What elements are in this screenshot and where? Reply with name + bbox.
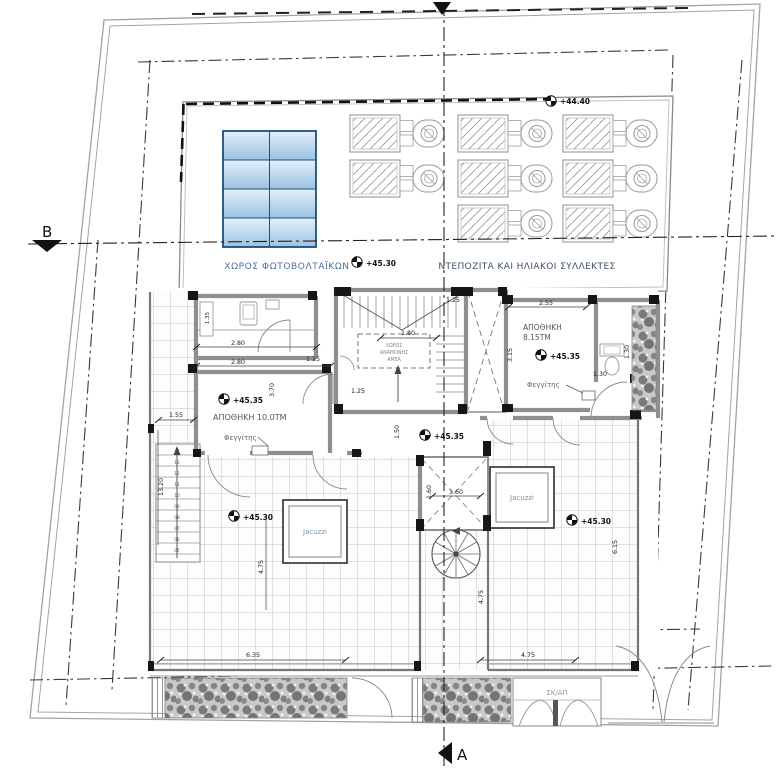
dim: 3.15 [507, 348, 514, 362]
elevation-terrace-left: +45.30 [243, 513, 273, 522]
section-letter-a: A [457, 746, 468, 764]
stair-store-room [513, 678, 601, 726]
step-number: 05 [174, 548, 180, 553]
dim: 2.55 [539, 300, 553, 307]
benchmark-icon [420, 430, 430, 440]
step-number: 06 [174, 537, 180, 542]
dim: 6.15 [612, 540, 619, 554]
storage-right-name: ΑΠΟΘΗΚΗ [523, 323, 562, 332]
amea-label-3: ΑΜΕΑ [387, 357, 401, 363]
dim: 1.35 [205, 311, 211, 324]
dim: 1.80 [401, 330, 415, 337]
benchmark-icon [219, 394, 229, 404]
photovoltaic-panels [223, 131, 316, 247]
step-number: 08 [174, 515, 180, 520]
benchmark-icon [546, 96, 556, 106]
dim: 2.80 [231, 340, 245, 347]
solar-collectors-label: ΝΤΕΠΟΖΙΤΑ ΚΑΙ ΗΛΙΑΚΟΙ ΣΥΛΛΕΚΤΕΣ [438, 262, 615, 272]
dim: 1.25 [446, 297, 460, 304]
storage-left-label: ΑΠΟΘΗΚΗ 10.0ΤΜ [213, 413, 287, 422]
dim: 1.25 [351, 388, 365, 395]
dim: 1.30 [624, 345, 631, 359]
elevation-corridor: +45.35 [434, 432, 464, 441]
elevation-storage-right: +45.35 [550, 352, 580, 361]
dim: 4.75 [258, 560, 265, 574]
service-shaft [466, 290, 506, 412]
elevation-pv-level: +45.30 [366, 259, 396, 268]
storage-right-area: 8.15ΤΜ [523, 333, 551, 342]
roof-plan-drawing: ΧΩΡΟΣ ΦΩΤΟΒΟΛΤΑΪΚΩΝ ΝΤΕΠΟΖΙΤΑ ΚΑΙ ΗΛΙΑΚΟ… [0, 0, 780, 774]
dim: 1.60 [449, 489, 463, 496]
photovoltaic-area-label: ΧΩΡΟΣ ΦΩΤΟΒΟΛΤΑΪΚΩΝ [224, 261, 349, 272]
step-number: 12 [174, 471, 180, 476]
dim: 4.75 [521, 652, 535, 659]
elevation-terrace-right: +45.30 [581, 517, 611, 526]
skylight-right-label: Φεγγίτης [527, 381, 560, 389]
dim: 2.80 [231, 359, 245, 366]
elevation-roof-high: +44.40 [560, 97, 590, 106]
amea-label-1: ΧΩΡΟΣ [386, 343, 403, 349]
skylight-left-label: Φεγγίτης [224, 434, 257, 442]
floor-plan-canvas: ΧΩΡΟΣ ΦΩΤΟΒΟΛΤΑΪΚΩΝ ΝΤΕΠΟΖΙΤΑ ΚΑΙ ΗΛΙΑΚΟ… [0, 0, 780, 774]
amea-label-2: ΑΝΑΜΟΝΗΣ [380, 350, 408, 356]
benchmark-icon [567, 515, 577, 525]
step-number: 14 [174, 449, 180, 454]
dim: 1.25 [306, 356, 320, 363]
step-number: 11 [174, 482, 180, 487]
jacuzzi-right-label: Jacuzzi [509, 494, 534, 502]
stair-store-label: ΣΚ/ΑΠ [546, 689, 567, 697]
step-number: 10 [174, 493, 180, 498]
dim: 6.35 [246, 652, 260, 659]
elevation-storage-left: +45.35 [233, 396, 263, 405]
jacuzzi-left-label: Jacuzzi [302, 528, 327, 536]
benchmark-icon [536, 350, 546, 360]
dim: 1.30 [593, 371, 607, 378]
benchmark-icon [352, 257, 362, 267]
dim: 1.55 [169, 412, 183, 419]
section-letter-b: B [42, 223, 52, 241]
step-number: 07 [174, 526, 180, 531]
dim: 1.60 [426, 485, 433, 499]
dim: 4.75 [478, 590, 485, 604]
benchmark-icon [229, 511, 239, 521]
step-number: 13 [174, 460, 180, 465]
dim: 1.50 [394, 425, 401, 439]
dim: 3.70 [269, 383, 276, 397]
step-number: 09 [174, 504, 180, 509]
dim: 13.20 [158, 478, 165, 496]
